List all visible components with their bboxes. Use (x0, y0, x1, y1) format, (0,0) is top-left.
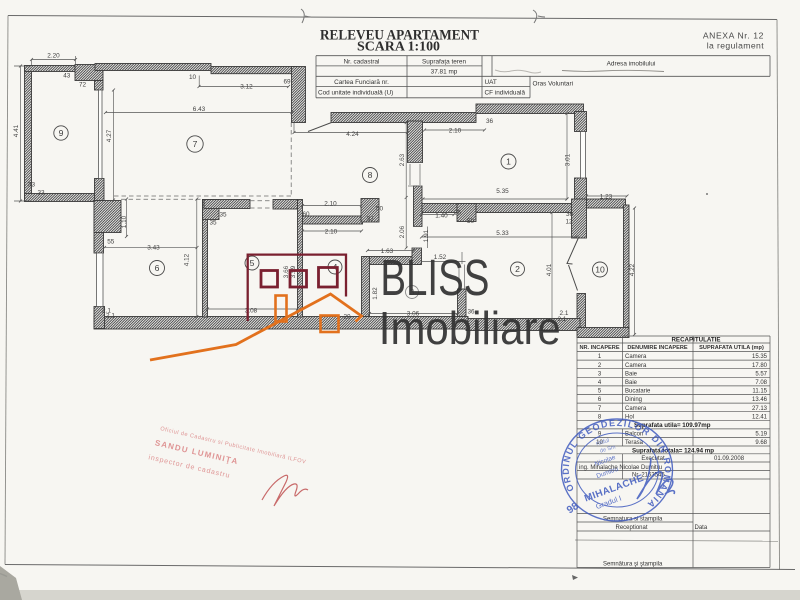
svg-text:4.01: 4.01 (546, 263, 553, 276)
svg-text:Suprafata totala= 124.94 mp: Suprafata totala= 124.94 mp (632, 447, 714, 454)
svg-text:1.82: 1.82 (372, 287, 379, 300)
svg-text:2: 2 (515, 264, 520, 274)
svg-text:9.68: 9.68 (755, 440, 767, 446)
svg-text:11.15: 11.15 (752, 389, 767, 395)
svg-text:35: 35 (219, 212, 227, 219)
svg-text:72: 72 (79, 82, 87, 89)
svg-text:01.09.2008: 01.09.2008 (714, 456, 745, 462)
svg-text:4.12: 4.12 (184, 253, 191, 266)
svg-text:33: 33 (37, 190, 45, 197)
svg-text:7: 7 (193, 139, 198, 149)
svg-text:la regulament: la regulament (707, 41, 764, 51)
svg-text:Dining: Dining (625, 397, 642, 403)
svg-text:RECAPITULATIE: RECAPITULATIE (671, 337, 720, 344)
svg-text:2.1: 2.1 (106, 313, 115, 320)
svg-text:1: 1 (506, 157, 511, 167)
svg-text:5.35: 5.35 (496, 188, 509, 195)
svg-text:SCARA 1:100: SCARA 1:100 (357, 39, 440, 54)
svg-text:3.12: 3.12 (240, 84, 253, 91)
svg-text:36: 36 (454, 210, 462, 217)
svg-text:Baie: Baie (625, 371, 638, 377)
svg-text:Camera: Camera (625, 363, 647, 369)
svg-text:CF individuală: CF individuală (485, 90, 526, 97)
svg-text:20: 20 (343, 314, 351, 321)
svg-text:27.13: 27.13 (752, 406, 768, 412)
svg-text:15.35: 15.35 (752, 354, 768, 360)
svg-text:1.10: 1.10 (121, 215, 128, 228)
svg-text:4.27: 4.27 (106, 129, 113, 142)
svg-text:33: 33 (366, 216, 374, 223)
svg-text:36: 36 (486, 118, 494, 125)
svg-text:50: 50 (467, 218, 475, 225)
svg-text:Adresa imobilului: Adresa imobilului (607, 61, 656, 68)
svg-text:37.81 mp: 37.81 mp (431, 69, 458, 76)
svg-text:2.10: 2.10 (325, 228, 338, 235)
svg-text:5.19: 5.19 (755, 431, 767, 437)
svg-text:12: 12 (565, 219, 573, 226)
svg-text:1.23: 1.23 (600, 194, 613, 201)
svg-text:36: 36 (566, 211, 574, 218)
svg-text:43: 43 (63, 73, 71, 80)
svg-text:3.01: 3.01 (565, 153, 572, 166)
svg-text:69: 69 (283, 79, 291, 86)
svg-text:4.24: 4.24 (346, 131, 359, 138)
svg-text:12.41: 12.41 (752, 414, 768, 420)
svg-text:33: 33 (28, 182, 36, 189)
svg-text:8: 8 (368, 170, 373, 180)
svg-text:NR. INCAPERE: NR. INCAPERE (579, 345, 619, 351)
svg-text:4.41: 4.41 (13, 124, 20, 137)
svg-text:Semnătura şi ştampila: Semnătura şi ştampila (603, 562, 663, 568)
svg-text:BLISS: BLISS (380, 249, 489, 306)
svg-text:2.10: 2.10 (324, 200, 337, 207)
svg-text:2.63: 2.63 (399, 153, 406, 166)
svg-text:50: 50 (376, 206, 384, 213)
svg-text:17.80: 17.80 (752, 363, 768, 369)
svg-text:13.46: 13.46 (752, 397, 768, 403)
svg-text:35: 35 (209, 220, 217, 227)
svg-text:Oras Voluntari: Oras Voluntari (533, 81, 574, 88)
svg-text:Suprafața teren: Suprafața teren (422, 58, 467, 65)
svg-text:Data: Data (695, 525, 708, 531)
svg-text:4.22: 4.22 (629, 263, 636, 276)
svg-text:5.57: 5.57 (755, 371, 767, 377)
svg-text:Camera: Camera (625, 354, 647, 360)
svg-text:Receptionat: Receptionat (615, 525, 647, 531)
svg-text:5.33: 5.33 (496, 230, 509, 237)
svg-text:6: 6 (155, 263, 160, 273)
svg-text:Cod unitate individuală (U): Cod unitate individuală (U) (318, 90, 393, 97)
svg-text:60: 60 (302, 211, 310, 218)
svg-text:Bucatarie: Bucatarie (625, 389, 651, 395)
svg-text:UAT: UAT (485, 79, 497, 86)
svg-text:10: 10 (189, 74, 197, 81)
svg-text:Cartea Funciară nr.: Cartea Funciară nr. (334, 79, 389, 86)
svg-text:5: 5 (250, 258, 255, 268)
svg-text:Nr. cadastral: Nr. cadastral (344, 58, 380, 65)
svg-text:Terasa: Terasa (625, 440, 644, 446)
svg-text:ANEXA Nr. 12: ANEXA Nr. 12 (703, 31, 764, 41)
svg-text:Baie: Baie (625, 380, 638, 386)
svg-text:1.40: 1.40 (435, 213, 448, 220)
svg-text:SUPRAFATA UTILA (mp): SUPRAFATA UTILA (mp) (699, 345, 764, 351)
svg-text:2.10: 2.10 (449, 128, 462, 135)
svg-text:10: 10 (595, 265, 605, 275)
svg-text:Camera: Camera (625, 406, 647, 412)
svg-text:3.43: 3.43 (147, 245, 160, 252)
svg-text:9: 9 (59, 128, 64, 138)
svg-text:DENUMIRE INCAPERE: DENUMIRE INCAPERE (627, 345, 688, 351)
svg-text:2.06: 2.06 (399, 225, 406, 238)
svg-text:1.91: 1.91 (423, 229, 430, 242)
svg-text:6.43: 6.43 (193, 106, 206, 113)
svg-text:7.08: 7.08 (755, 380, 767, 386)
svg-text:55: 55 (107, 239, 115, 246)
svg-text:2.20: 2.20 (47, 53, 60, 60)
svg-text:Imobiliare: Imobiliare (379, 302, 561, 354)
